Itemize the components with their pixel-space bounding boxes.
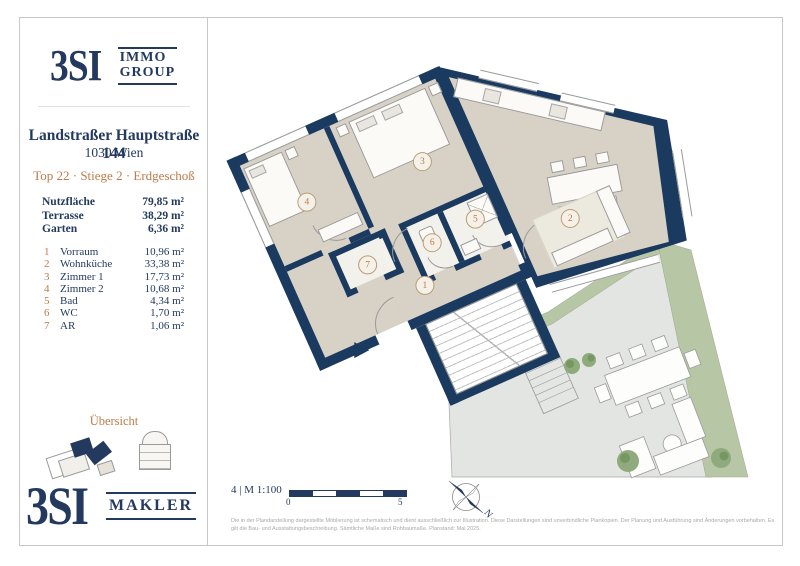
disclaimer-line2: gilt die Bau- und Ausstattungsbeschreibu… xyxy=(231,525,776,533)
page-frame xyxy=(19,17,783,546)
scale-bar xyxy=(289,490,407,497)
plan-meta: 4 | M 1:100 xyxy=(231,484,282,496)
logo-makler: 3SI MAKLER xyxy=(26,478,216,534)
disclaimer: Die in der Plandarstellung dargestellte … xyxy=(231,517,776,533)
logo-makler-label: MAKLER xyxy=(106,492,196,520)
sidebar-divider xyxy=(207,17,208,545)
logo-line-immo: IMMO xyxy=(120,51,176,66)
logo-mark: 3SI xyxy=(50,44,102,88)
logo-sub-label: IMMO GROUP xyxy=(118,47,178,84)
logo-immo-group: 3SI IMMO GROUP xyxy=(50,40,190,92)
disclaimer-line1: Die in der Plandarstellung dargestellte … xyxy=(231,517,776,525)
scale-segment xyxy=(336,491,359,496)
compass-rose: N xyxy=(445,477,501,521)
scale-segment xyxy=(290,491,313,496)
logo-line-group: GROUP xyxy=(120,66,176,81)
scale-segment xyxy=(383,491,406,496)
logo-mark: 3SI xyxy=(26,479,87,533)
scale-segment xyxy=(360,491,383,496)
scale-segment xyxy=(313,491,336,496)
floorplan-datasheet: 1 2 3 4 5 6 7 3SI IMMO GROUP Landstraßer… xyxy=(0,0,800,566)
